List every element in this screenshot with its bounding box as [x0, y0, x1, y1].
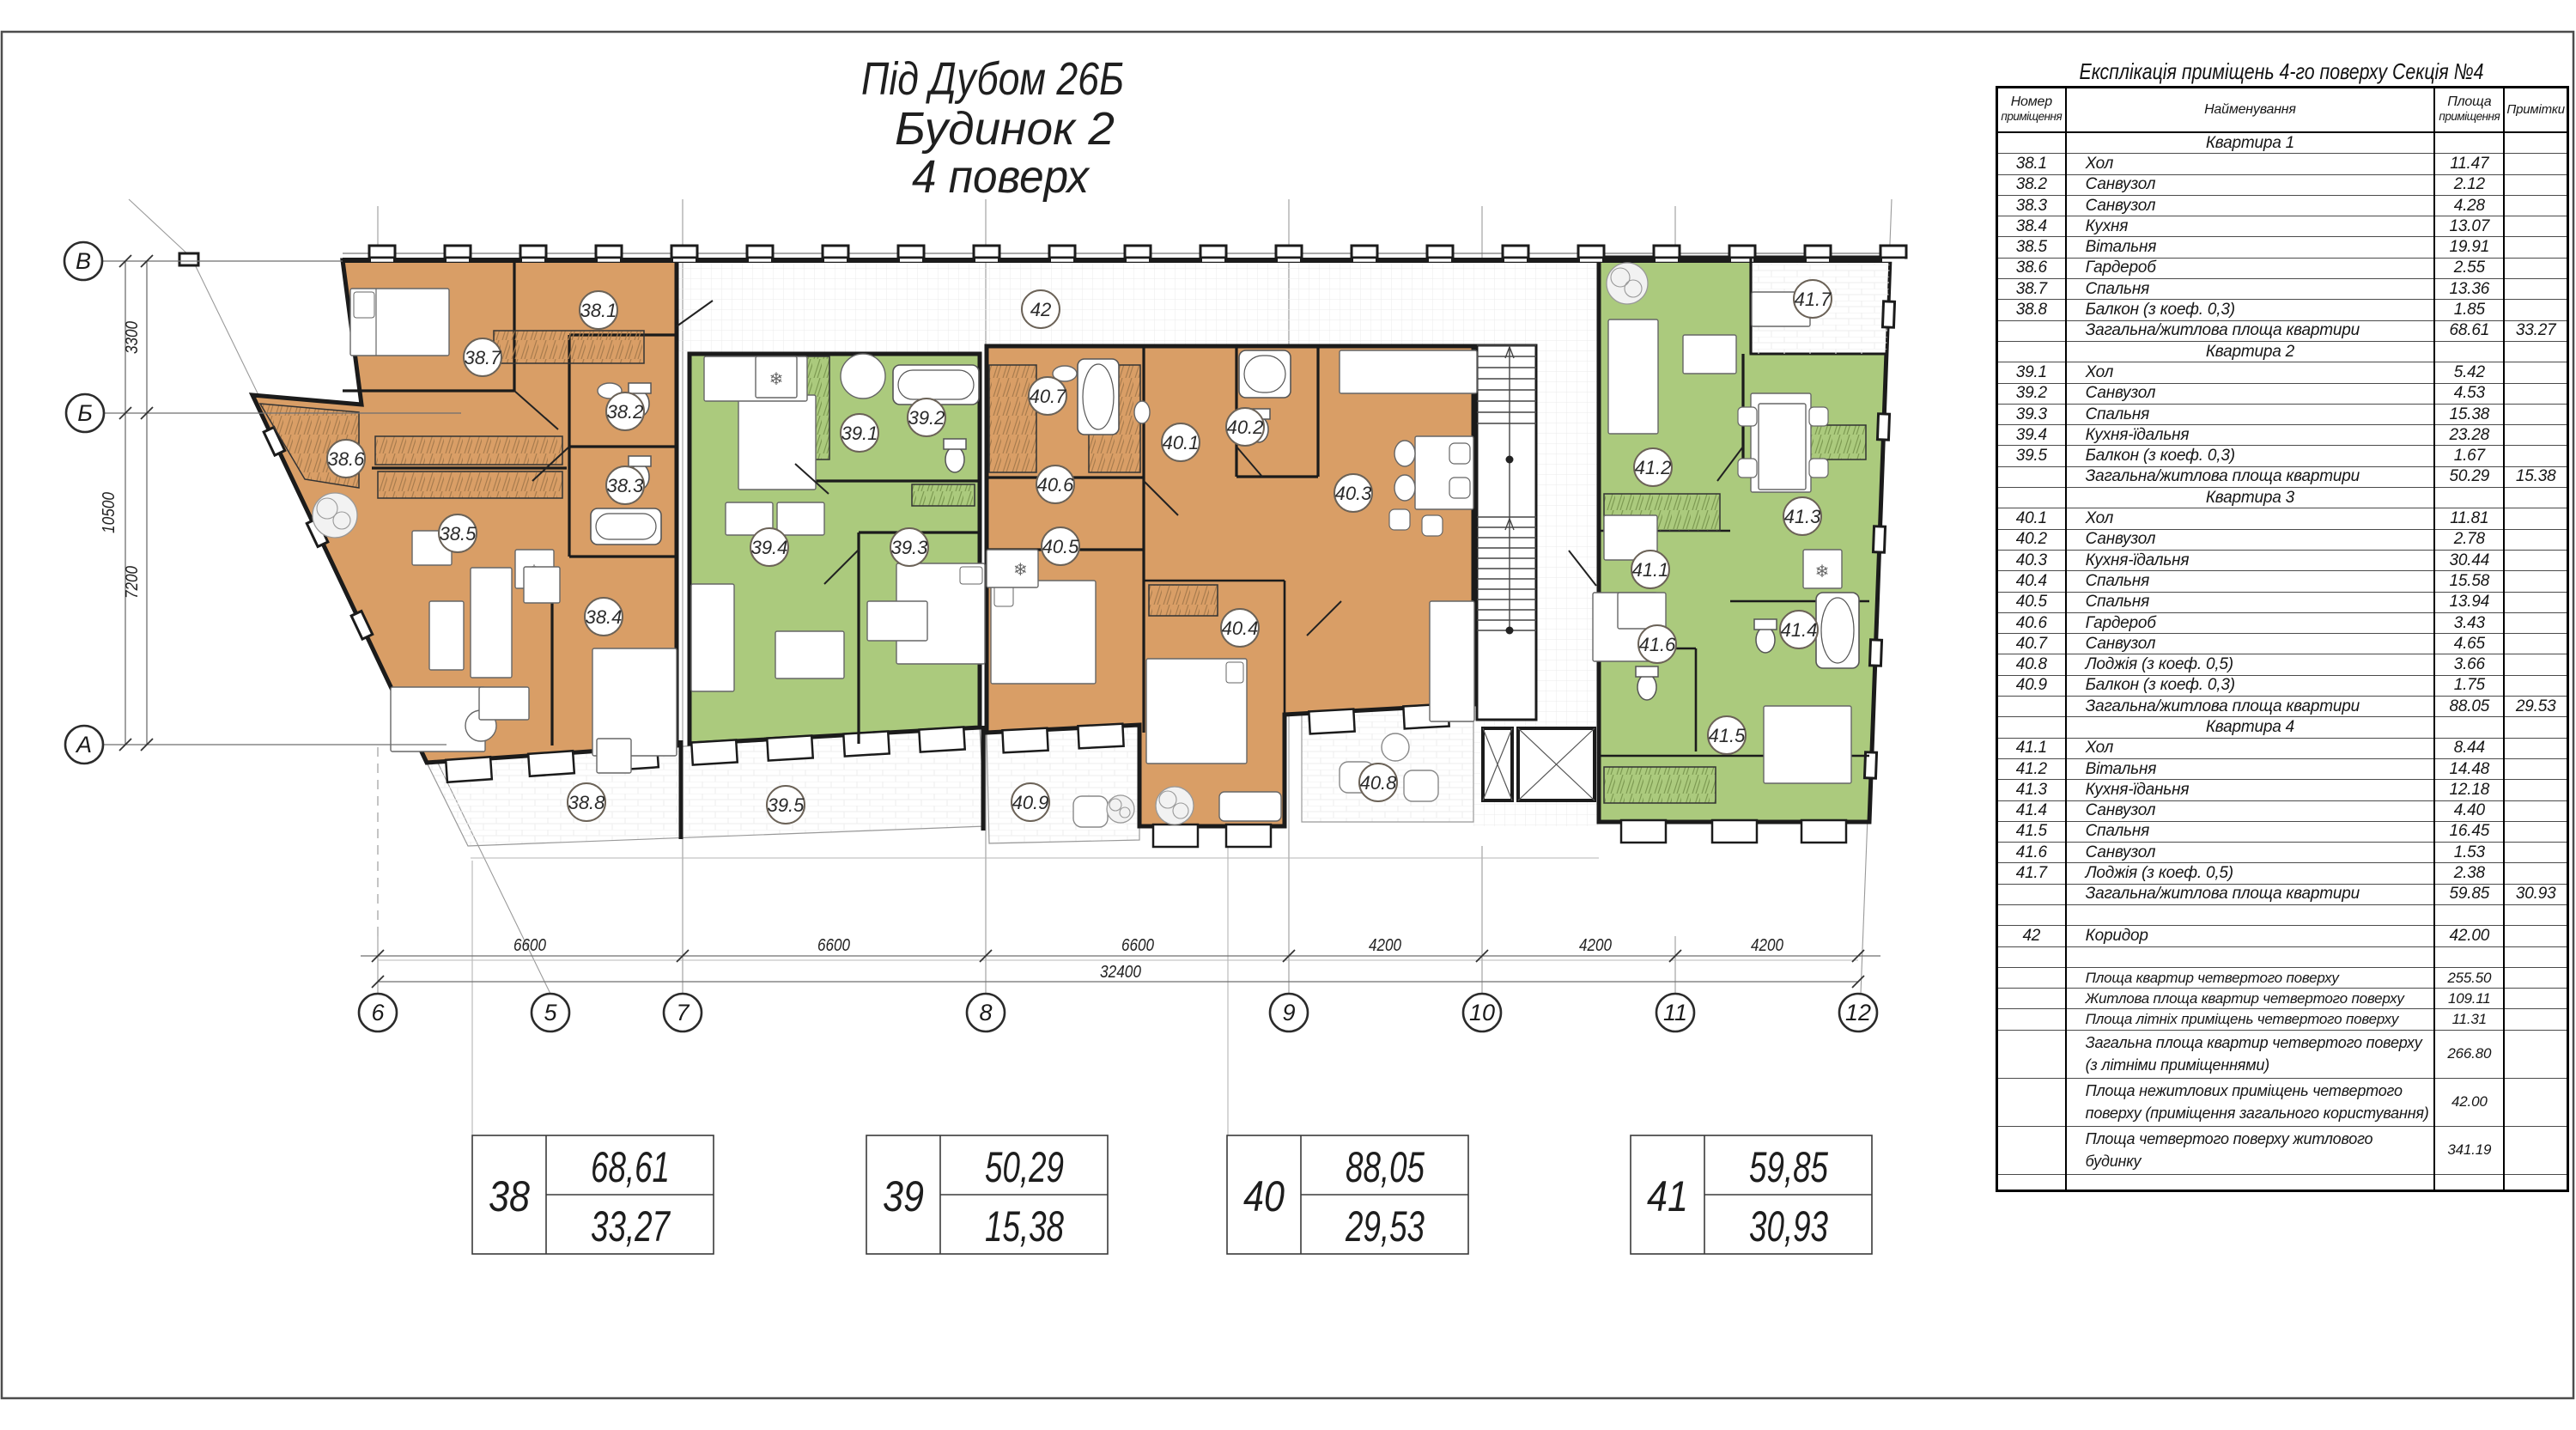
svg-text:40.7: 40.7 [1030, 386, 1067, 407]
svg-text:38.6: 38.6 [328, 448, 366, 470]
svg-text:Б: Б [77, 400, 93, 426]
svg-text:30,93: 30,93 [1749, 1202, 1828, 1250]
svg-text:41: 41 [1647, 1172, 1688, 1220]
svg-text:38.7: 38.7 [465, 347, 502, 368]
svg-text:6600: 6600 [1121, 936, 1154, 955]
svg-text:40.2: 40.2 [1227, 417, 1264, 438]
svg-text:6600: 6600 [513, 936, 546, 955]
svg-text:39.5: 39.5 [768, 794, 805, 816]
svg-text:41.3: 41.3 [1784, 506, 1822, 527]
svg-text:40.8: 40.8 [1360, 772, 1398, 794]
svg-text:39.1: 39.1 [841, 423, 878, 444]
svg-text:38.3: 38.3 [607, 475, 645, 496]
svg-text:38.4: 38.4 [586, 606, 623, 628]
svg-text:40.9: 40.9 [1012, 792, 1049, 813]
svg-text:41.7: 41.7 [1795, 289, 1832, 310]
svg-text:38.1: 38.1 [580, 300, 617, 321]
svg-text:50,29: 50,29 [985, 1143, 1064, 1191]
svg-text:4200: 4200 [1579, 936, 1612, 955]
svg-text:4200: 4200 [1369, 936, 1401, 955]
svg-text:40.4: 40.4 [1222, 618, 1259, 639]
svg-text:88,05: 88,05 [1346, 1143, 1425, 1191]
svg-text:❄: ❄ [769, 370, 784, 389]
svg-text:3300: 3300 [123, 321, 142, 354]
svg-text:4 поверх: 4 поверх [912, 151, 1091, 203]
svg-text:41.4: 41.4 [1781, 619, 1818, 641]
svg-text:6600: 6600 [817, 936, 850, 955]
svg-text:38.8: 38.8 [568, 792, 606, 813]
svg-text:40.6: 40.6 [1037, 474, 1075, 496]
svg-text:❄: ❄ [1815, 563, 1830, 581]
svg-text:33,27: 33,27 [591, 1202, 671, 1250]
svg-text:7200: 7200 [123, 566, 142, 599]
svg-text:38: 38 [489, 1172, 530, 1220]
svg-text:8: 8 [979, 1000, 992, 1025]
svg-text:42: 42 [1030, 299, 1051, 320]
svg-text:❄: ❄ [1013, 561, 1028, 580]
svg-text:29,53: 29,53 [1345, 1202, 1425, 1250]
svg-text:7: 7 [676, 1000, 690, 1025]
svg-text:40.1: 40.1 [1163, 432, 1200, 453]
svg-text:68,61: 68,61 [591, 1143, 670, 1191]
svg-text:41.2: 41.2 [1635, 457, 1672, 478]
svg-text:В: В [76, 248, 91, 274]
svg-text:9: 9 [1282, 1000, 1295, 1025]
svg-text:39.4: 39.4 [751, 537, 788, 558]
svg-text:5: 5 [544, 1000, 557, 1025]
svg-text:40.5: 40.5 [1042, 536, 1080, 557]
svg-text:10: 10 [1469, 1000, 1495, 1025]
svg-text:39: 39 [883, 1172, 924, 1220]
svg-text:11: 11 [1663, 1000, 1687, 1025]
svg-text:10500: 10500 [100, 492, 118, 533]
svg-text:39.2: 39.2 [908, 407, 945, 429]
svg-text:40: 40 [1243, 1172, 1285, 1220]
svg-text:12: 12 [1845, 1000, 1871, 1025]
svg-text:4200: 4200 [1751, 936, 1783, 955]
svg-text:40.3: 40.3 [1335, 483, 1373, 504]
svg-text:38.2: 38.2 [607, 401, 644, 423]
svg-text:Будинок 2: Будинок 2 [895, 103, 1115, 155]
svg-text:32400: 32400 [1100, 963, 1141, 982]
svg-text:39.3: 39.3 [891, 537, 929, 558]
svg-text:41.6: 41.6 [1639, 634, 1677, 655]
svg-text:А: А [75, 732, 92, 758]
svg-text:38.5: 38.5 [440, 523, 477, 545]
svg-text:6: 6 [371, 1000, 385, 1025]
svg-text:41.5: 41.5 [1709, 725, 1747, 746]
svg-text:Пiд Дубом 26Б: Пiд Дубом 26Б [861, 53, 1124, 105]
svg-text:59,85: 59,85 [1749, 1143, 1828, 1191]
svg-text:41.1: 41.1 [1632, 559, 1669, 581]
svg-text:15,38: 15,38 [985, 1202, 1064, 1250]
